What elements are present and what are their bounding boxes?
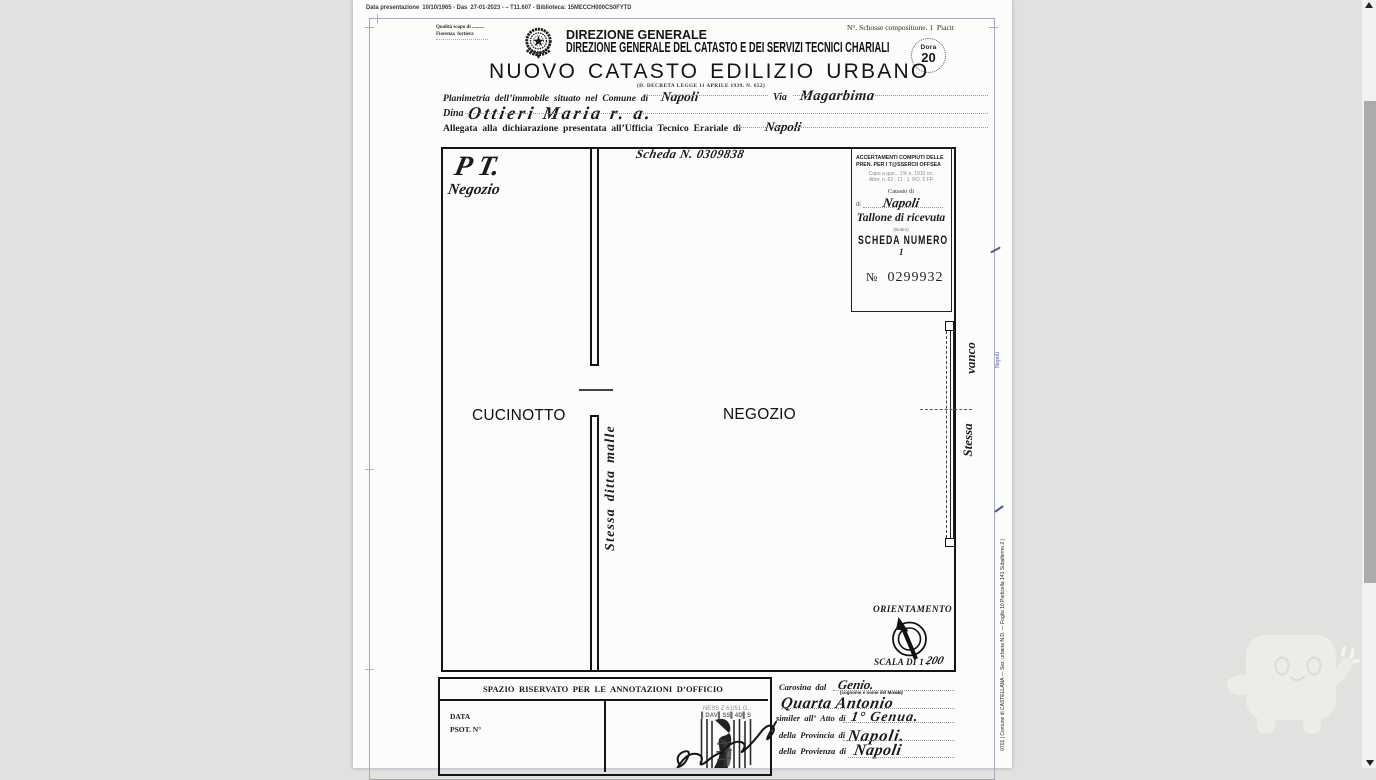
svg-text:NESS Z 61/51 G.: NESS Z 61/51 G. <box>703 706 749 712</box>
svg-text:▌DAV▌SS▌4D▌S: ▌DAV▌SS▌4D▌S <box>701 711 751 719</box>
